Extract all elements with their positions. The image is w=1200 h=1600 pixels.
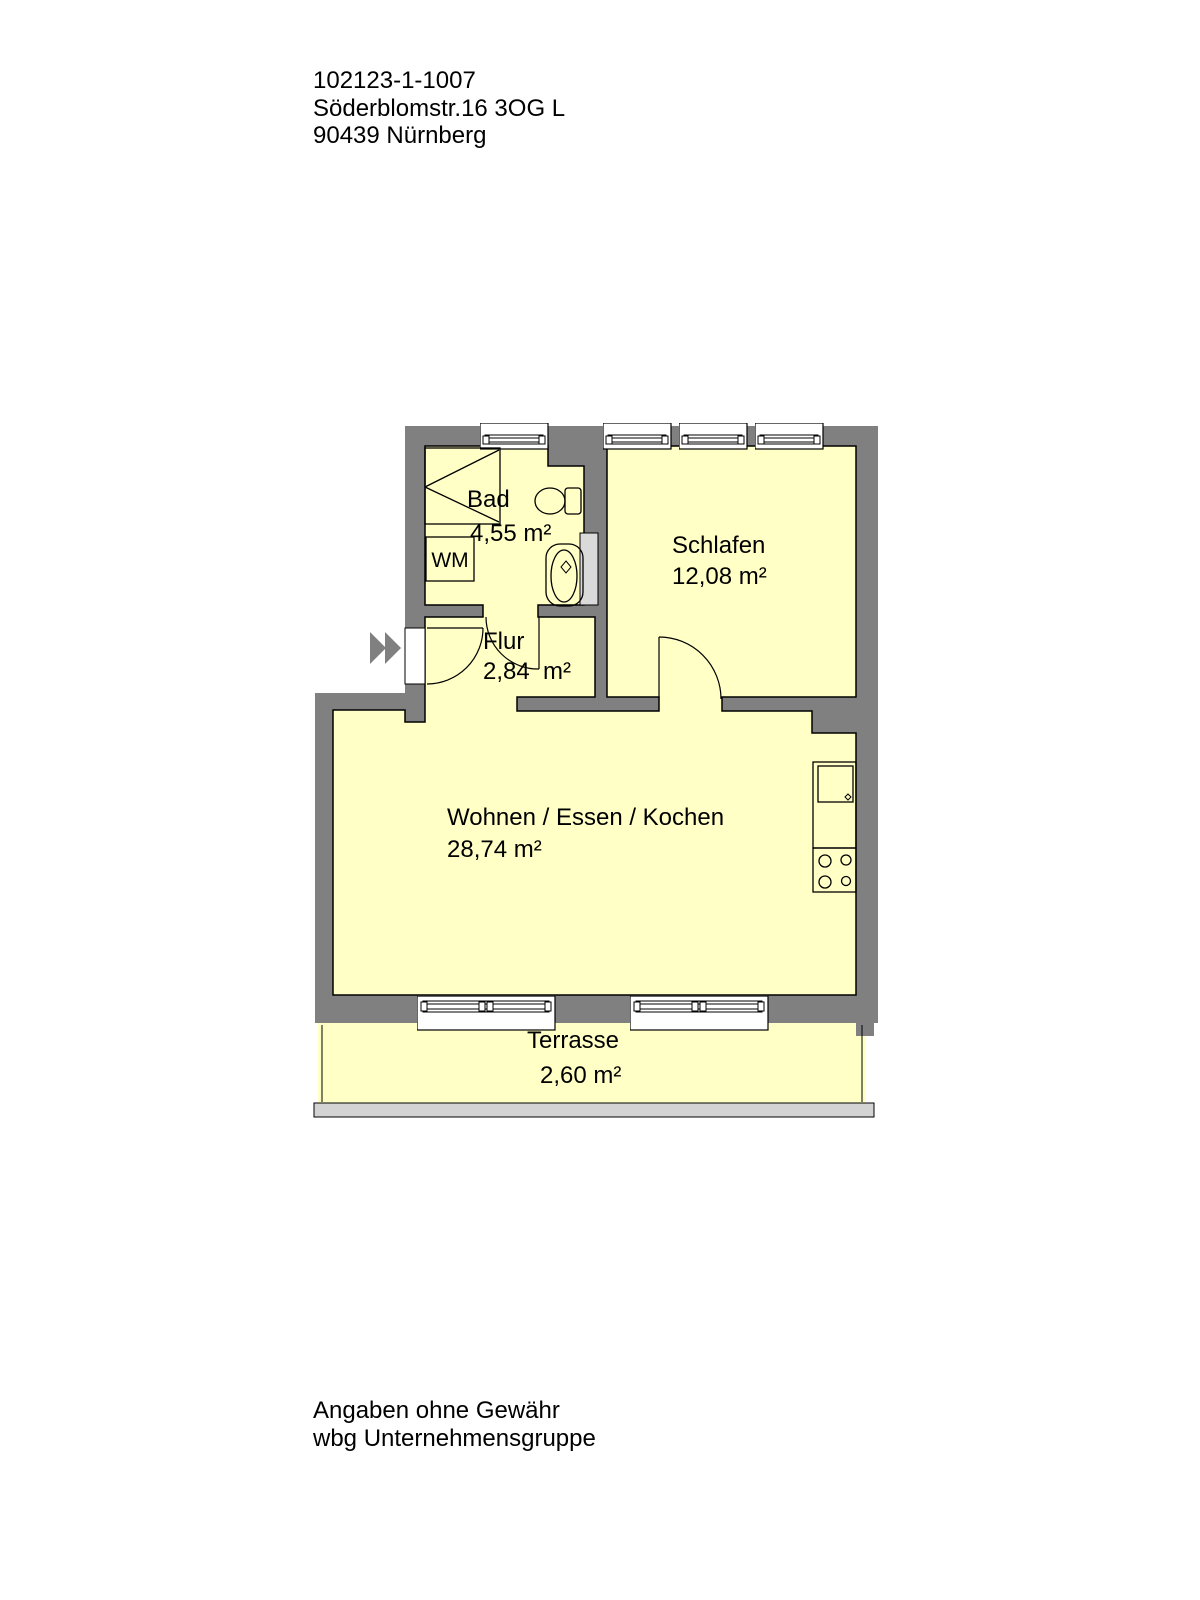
wall-kitchen-chunk — [810, 695, 856, 735]
room-label-flur: Flur — [483, 628, 524, 655]
wall-bad-corner-notch — [546, 440, 584, 468]
terrace-door-2 — [630, 996, 768, 1030]
window-schlafen-1 — [603, 423, 671, 449]
wall-bottom — [315, 995, 878, 1023]
room-area-schlafen: 12,08 m² — [672, 563, 767, 590]
entry-arrow-icon — [370, 632, 386, 664]
washing-machine-label: WM — [431, 549, 468, 572]
windows — [480, 423, 823, 449]
terrace-wall-stub — [856, 1023, 874, 1036]
window-schlafen-3 — [755, 423, 823, 449]
wall-right — [856, 426, 878, 1023]
room-area-bad: 4,55 m² — [470, 520, 551, 547]
entry-door-opening — [405, 628, 425, 684]
wall-left-upper — [405, 426, 427, 630]
room-area-flur: 2,84 m² — [483, 658, 571, 685]
entry-arrow-icon — [385, 632, 401, 664]
room-label-schlafen: Schlafen — [672, 532, 765, 559]
header-line-1: 102123-1-1007 — [313, 67, 476, 94]
header-line-2: Söderblomstr.16 3OG L — [313, 95, 565, 122]
terrace-door-1 — [417, 996, 555, 1030]
window-schlafen-2 — [679, 423, 747, 449]
floorplan-drawing: 102123-1-1007 Söderblomstr.16 3OG L 9043… — [0, 0, 1200, 1600]
footer-line-2: wbg Unternehmensgruppe — [312, 1425, 596, 1452]
terrace-base-slab — [314, 1103, 874, 1117]
footer-line-1: Angaben ohne Gewähr — [313, 1397, 560, 1424]
floorplan-page: 102123-1-1007 Söderblomstr.16 3OG L 9043… — [0, 0, 1200, 1600]
room-area-terrasse: 2,60 m² — [540, 1062, 621, 1089]
wall-left-lower — [315, 693, 335, 1023]
window-bad — [480, 423, 548, 449]
header-line-3: 90439 Nürnberg — [313, 122, 486, 149]
room-label-terrasse: Terrasse — [527, 1027, 619, 1054]
room-label-bad: Bad — [467, 486, 510, 513]
room-label-wohnen: Wohnen / Essen / Kochen — [447, 804, 724, 831]
room-area-wohnen: 28,74 m² — [447, 836, 542, 863]
